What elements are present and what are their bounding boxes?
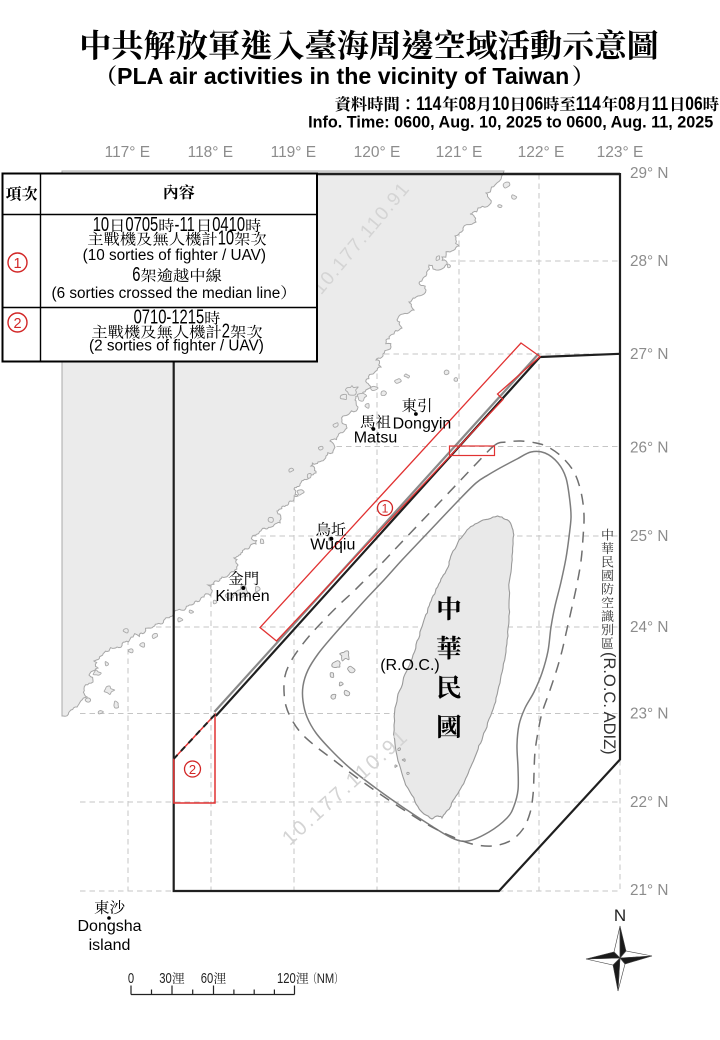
svg-text:10: 10: [492, 92, 510, 114]
svg-text:11: 11: [652, 92, 669, 114]
svg-text:114: 114: [576, 92, 601, 114]
svg-text:121° E: 121° E: [436, 144, 483, 161]
svg-text:PLA air activities in the vici: PLA air activities in the vicinity of Ta…: [117, 63, 569, 89]
svg-text:Info. Time: 0600, Aug. 10, 202: Info. Time: 0600, Aug. 10, 2025 to 0600,…: [308, 114, 713, 132]
svg-text:NM: NM: [317, 971, 334, 986]
svg-text:6: 6: [132, 263, 140, 286]
svg-text:(6 sorties crossed the median: (6 sorties crossed the median line: [52, 285, 281, 302]
svg-text:-: -: [175, 213, 180, 236]
svg-text:Dongsha: Dongsha: [78, 918, 142, 935]
svg-text:123° E: 123° E: [597, 144, 644, 161]
svg-text:1: 1: [382, 502, 389, 516]
svg-text:114: 114: [416, 92, 441, 114]
svg-text:120° E: 120° E: [354, 144, 401, 161]
svg-text:21° N: 21° N: [630, 882, 668, 899]
svg-text:29° N: 29° N: [630, 165, 668, 182]
svg-text:0710-1215: 0710-1215: [134, 305, 205, 328]
svg-text:22° N: 22° N: [630, 794, 668, 811]
svg-text:2: 2: [189, 762, 196, 777]
svg-text:25° N: 25° N: [630, 528, 668, 545]
svg-text:Matsu: Matsu: [354, 430, 398, 447]
svg-text:60: 60: [201, 969, 214, 986]
svg-text:N: N: [614, 906, 626, 925]
svg-text:10.177.110.91: 10.177.110.91: [278, 724, 414, 850]
svg-text:0: 0: [128, 969, 134, 986]
svg-text:06: 06: [685, 92, 703, 114]
svg-text:(R.O.C. ADIZ): (R.O.C. ADIZ): [600, 652, 618, 755]
svg-text:island: island: [89, 937, 131, 954]
svg-text:10: 10: [218, 226, 234, 249]
svg-text:117° E: 117° E: [105, 144, 151, 161]
svg-text:Dongyin: Dongyin: [393, 416, 452, 433]
svg-text:06: 06: [526, 92, 544, 114]
svg-text:Kinmen: Kinmen: [215, 588, 269, 605]
svg-text:119° E: 119° E: [271, 144, 317, 161]
svg-text:26° N: 26° N: [630, 440, 668, 457]
svg-text:11: 11: [180, 213, 195, 236]
svg-text:Wuqiu: Wuqiu: [310, 537, 355, 554]
svg-text:(R.O.C.): (R.O.C.): [380, 657, 440, 674]
svg-text:122° E: 122° E: [518, 144, 565, 161]
svg-text:27° N: 27° N: [630, 346, 668, 363]
svg-text:23° N: 23° N: [630, 706, 668, 723]
svg-text:08: 08: [618, 92, 636, 114]
svg-text:1: 1: [13, 256, 21, 272]
svg-text:118° E: 118° E: [188, 144, 234, 161]
svg-text:24° N: 24° N: [630, 619, 668, 636]
svg-text:(10 sorties of fighter / UAV): (10 sorties of fighter / UAV): [83, 247, 266, 264]
svg-text:2: 2: [13, 316, 21, 332]
svg-text:120: 120: [277, 969, 296, 986]
svg-text:30: 30: [159, 969, 172, 986]
svg-text:28° N: 28° N: [630, 253, 668, 270]
svg-text:10: 10: [93, 213, 109, 236]
svg-text:08: 08: [459, 92, 477, 114]
svg-text:(2 sorties of fighter / UAV): (2 sorties of fighter / UAV): [89, 338, 264, 355]
